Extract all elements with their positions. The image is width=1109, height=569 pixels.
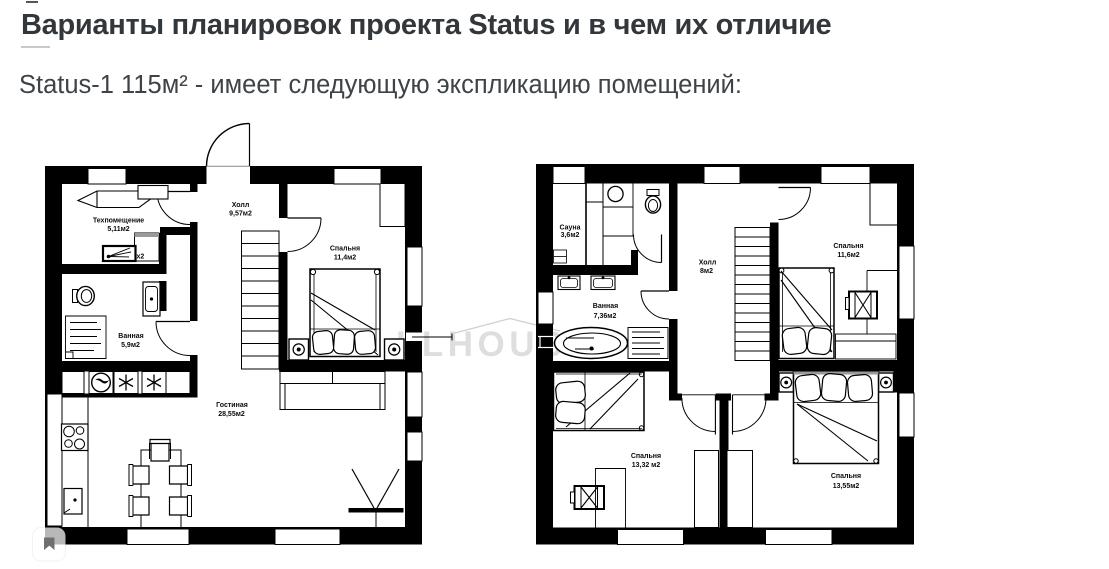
svg-text:9,57м2: 9,57м2: [229, 211, 252, 218]
svg-text:5,9м2: 5,9м2: [121, 342, 140, 349]
svg-text:Холл: Холл: [699, 260, 717, 267]
svg-text:Холл: Холл: [232, 202, 250, 209]
svg-text:5,11м2: 5,11м2: [107, 226, 129, 233]
svg-text:Спальня: Спальня: [631, 453, 661, 460]
svg-text:11,4м2: 11,4м2: [334, 255, 356, 262]
svg-text:Спальня: Спальня: [833, 243, 863, 250]
svg-text:11,6м2: 11,6м2: [837, 252, 859, 259]
svg-text:13,32 м2: 13,32 м2: [632, 462, 661, 469]
svg-text:8м2: 8м2: [700, 268, 713, 275]
svg-text:Ванная: Ванная: [593, 303, 618, 310]
svg-text:28,55м2: 28,55м2: [218, 411, 245, 418]
svg-text:Техпомещение: Техпомещение: [93, 218, 144, 225]
svg-text:Сауна: Сауна: [559, 225, 580, 232]
svg-text:7,36м2: 7,36м2: [594, 313, 617, 320]
svg-text:Ванная: Ванная: [118, 333, 143, 340]
svg-text:Спальня: Спальня: [330, 246, 360, 253]
svg-text:13,55м2: 13,55м2: [833, 483, 860, 490]
svg-text:Гостиная: Гостиная: [216, 402, 248, 409]
svg-text:Спальня: Спальня: [831, 473, 861, 480]
svg-text:3,6м2: 3,6м2: [561, 232, 580, 239]
svg-text:x2: x2: [137, 254, 145, 261]
